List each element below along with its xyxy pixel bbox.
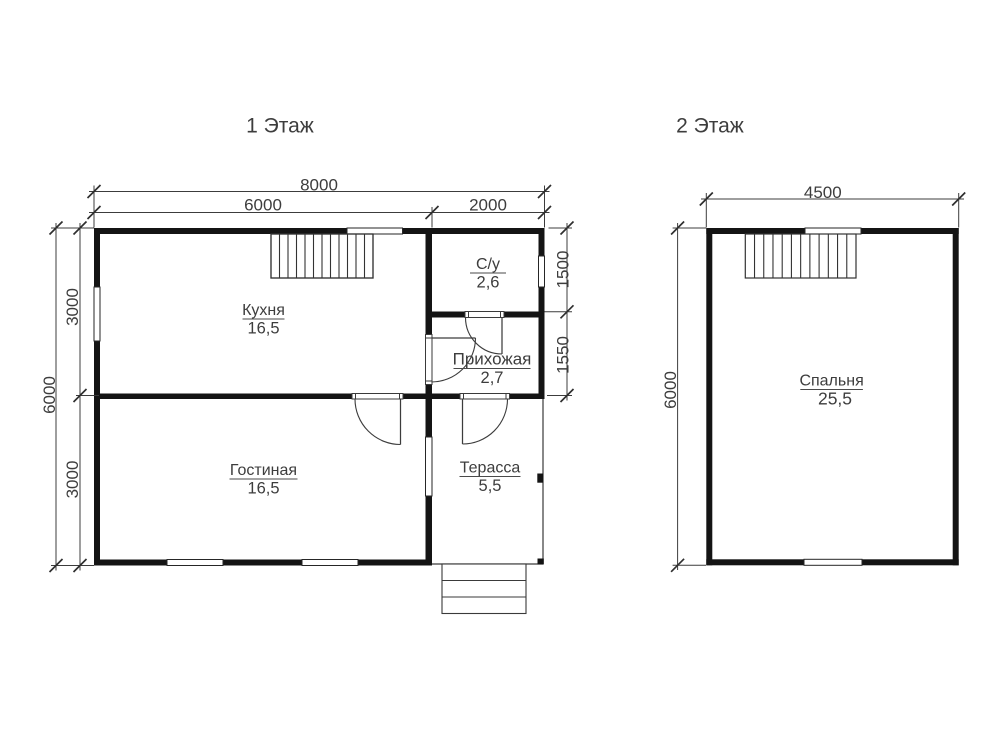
- svg-text:1550: 1550: [554, 336, 573, 374]
- svg-text:16,5: 16,5: [247, 320, 279, 338]
- svg-text:2000: 2000: [469, 196, 507, 215]
- svg-text:4500: 4500: [804, 183, 842, 202]
- svg-text:Спальня: Спальня: [799, 373, 863, 390]
- svg-text:25,5: 25,5: [818, 389, 852, 409]
- svg-text:6000: 6000: [661, 371, 680, 409]
- svg-text:2 Этаж: 2 Этаж: [676, 115, 744, 138]
- svg-text:Терасса: Терасса: [460, 460, 521, 477]
- svg-text:5,5: 5,5: [479, 477, 502, 495]
- svg-text:2,7: 2,7: [481, 369, 504, 387]
- svg-text:16,5: 16,5: [247, 480, 279, 498]
- svg-text:1 Этаж: 1 Этаж: [246, 115, 314, 138]
- svg-text:3000: 3000: [63, 288, 82, 326]
- svg-text:С/у: С/у: [476, 256, 500, 273]
- svg-text:3000: 3000: [63, 461, 82, 499]
- svg-text:8000: 8000: [300, 176, 338, 195]
- svg-text:6000: 6000: [40, 376, 59, 414]
- svg-text:Кухня: Кухня: [242, 302, 285, 319]
- svg-text:1500: 1500: [554, 251, 573, 289]
- svg-text:Прихожая: Прихожая: [453, 350, 532, 369]
- svg-text:6000: 6000: [244, 196, 282, 215]
- svg-text:2,6: 2,6: [477, 274, 500, 292]
- svg-text:Гостиная: Гостиная: [230, 462, 297, 479]
